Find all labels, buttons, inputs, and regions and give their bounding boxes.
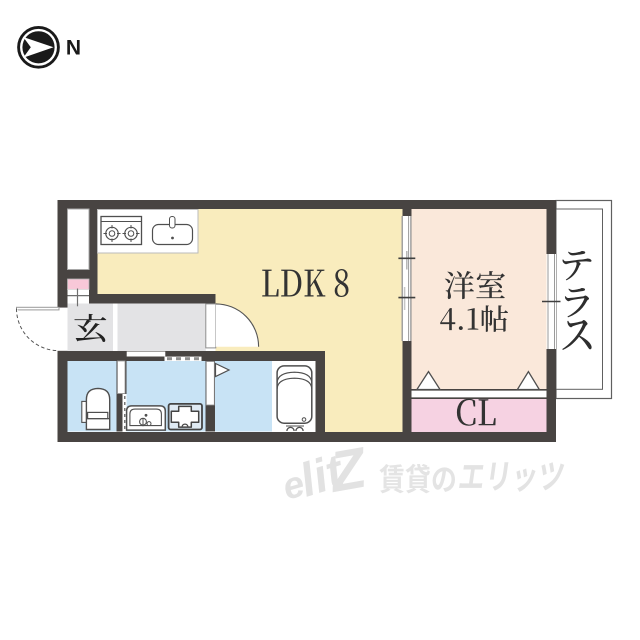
svg-text:N: N [66, 37, 81, 60]
